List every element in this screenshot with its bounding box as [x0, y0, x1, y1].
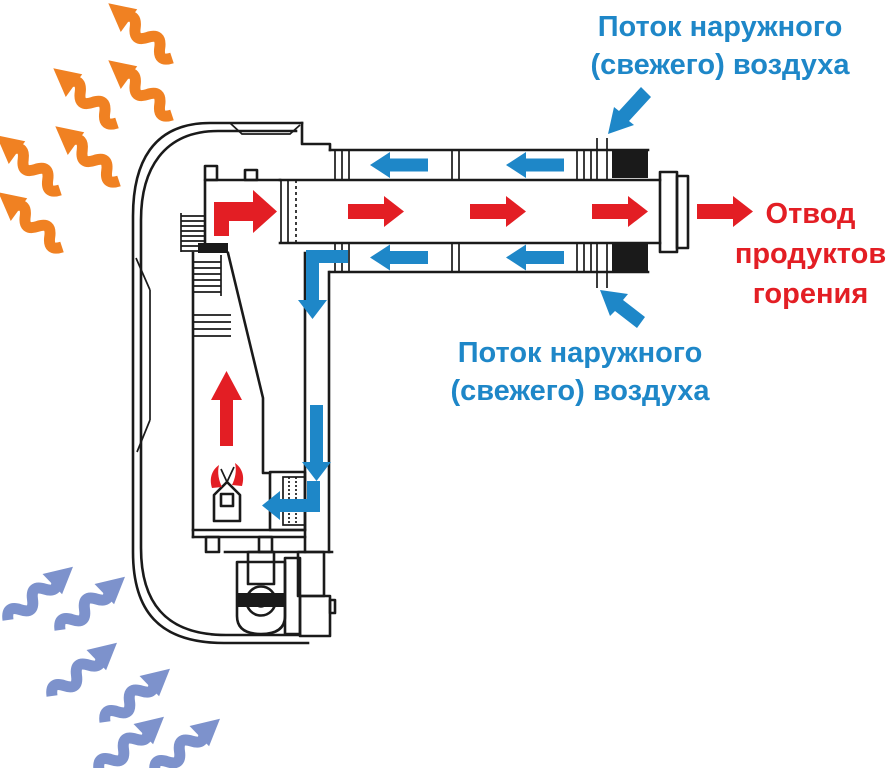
label-line: (свежего) воздуха — [420, 372, 740, 410]
label-fresh-air-top: Поток наружного (свежего) воздуха — [560, 8, 880, 84]
label-fresh-air-bottom: Поток наружного (свежего) воздуха — [420, 334, 740, 410]
hot-gas-up-arrow — [211, 371, 242, 446]
collector-tab — [205, 166, 217, 180]
label-line: Поток наружного — [560, 8, 880, 46]
label-line: горения — [728, 274, 893, 314]
fresh-air-arrow — [506, 245, 564, 271]
warm-air-arrows — [0, 0, 182, 257]
gas-valve — [237, 552, 335, 636]
label-line: (свежего) воздуха — [560, 46, 880, 84]
warm-air-arrow — [0, 125, 70, 200]
fresh-air-down-arrow — [302, 405, 331, 481]
label-exhaust: Отвод продуктов горения — [728, 194, 893, 314]
room-air-arrow — [97, 658, 179, 733]
room-air-arrow — [44, 632, 126, 707]
burner-icon — [211, 463, 243, 521]
label-line: продуктов — [728, 234, 893, 274]
exhaust-arrow — [348, 196, 404, 227]
fresh-air-arrow — [506, 152, 564, 178]
exhaust-arrow — [592, 196, 648, 227]
label-line: Поток наружного — [420, 334, 740, 372]
warm-air-arrow — [99, 0, 181, 68]
exhaust-arrow — [470, 196, 526, 227]
fresh-air-arrow — [370, 152, 428, 178]
room-air-arrow — [147, 708, 229, 768]
flame-icon — [211, 463, 243, 488]
label-line: Отвод — [728, 194, 893, 234]
collector-tab — [245, 170, 257, 180]
fresh-air-top-pointer-arrow — [608, 87, 651, 134]
fresh-air-arrows — [262, 87, 651, 520]
exhaust-bend-arrow — [214, 190, 277, 236]
flue-end-cap — [660, 172, 688, 252]
fresh-air-bottom-pointer-arrow — [600, 290, 645, 328]
fresh-air-arrow — [370, 245, 428, 271]
igniter-electrode-icon — [221, 467, 234, 482]
room-air-arrows — [0, 556, 229, 768]
